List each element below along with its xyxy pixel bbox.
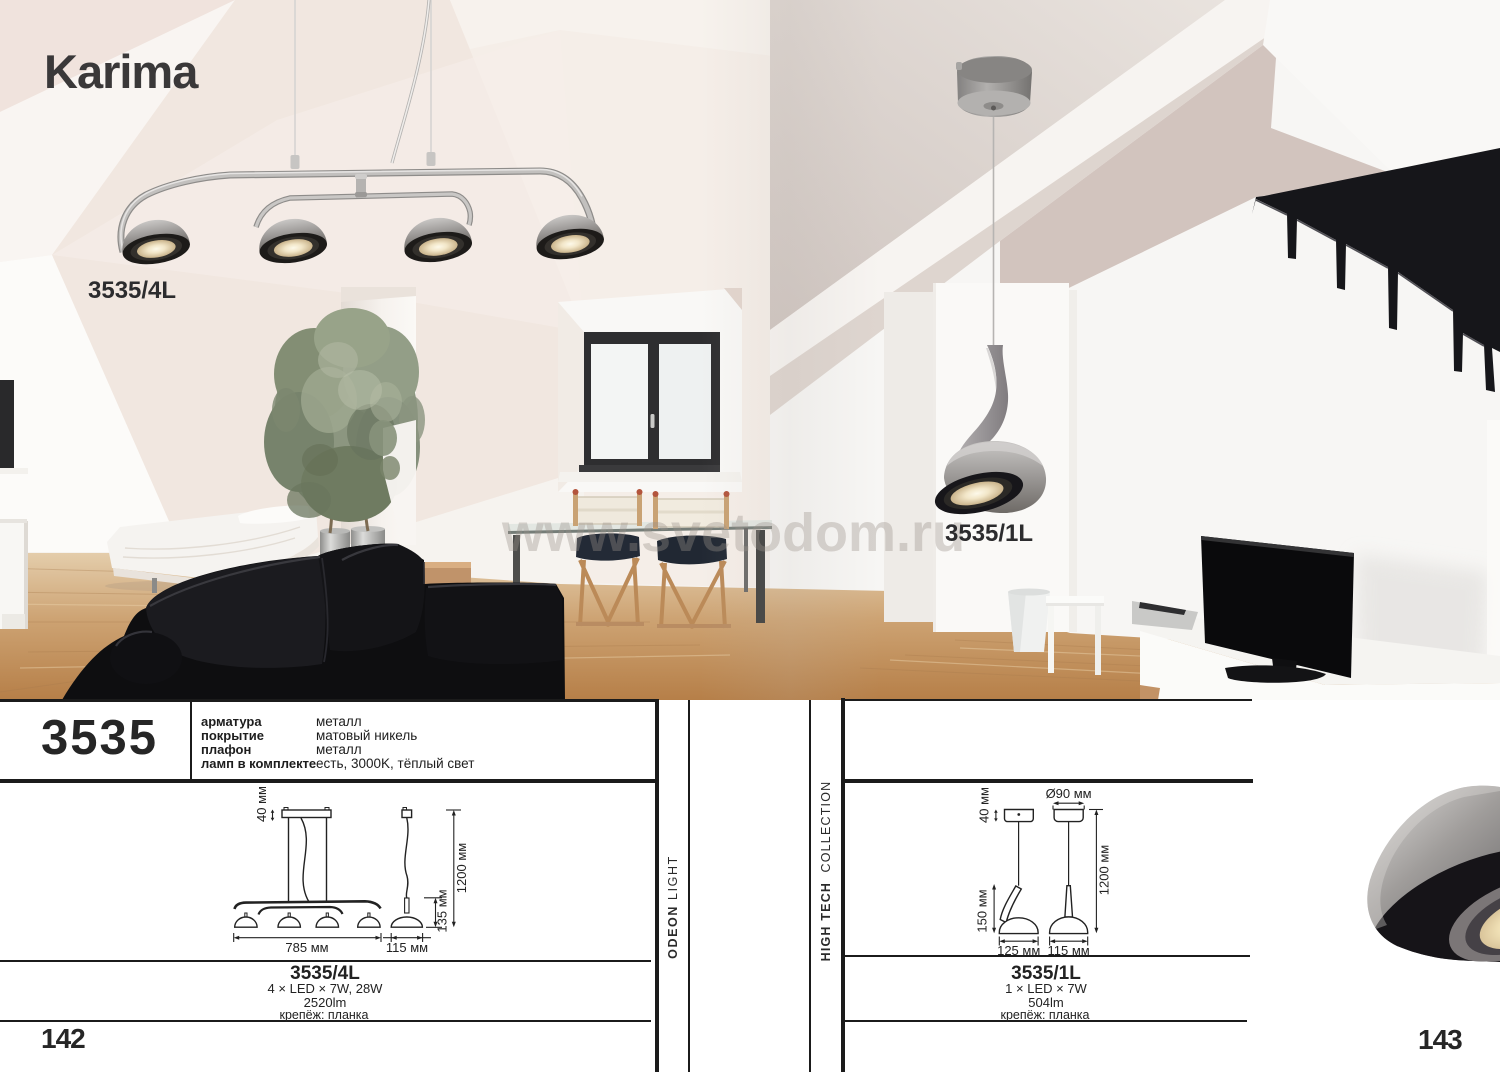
svg-text:115 мм: 115 мм: [386, 940, 428, 955]
svg-text:150 мм: 150 мм: [975, 889, 990, 932]
svg-text:135 мм: 135 мм: [435, 889, 450, 932]
svg-text:Ø90 мм: Ø90 мм: [1046, 786, 1092, 801]
svg-text:Karima: Karima: [44, 45, 199, 98]
svg-text:125 мм: 125 мм: [997, 943, 1040, 958]
svg-text:785 мм: 785 мм: [285, 940, 328, 955]
svg-text:1200 мм: 1200 мм: [454, 843, 469, 893]
svg-text:3535/4L: 3535/4L: [88, 277, 176, 304]
svg-text:1200 мм: 1200 мм: [1097, 845, 1112, 895]
svg-text:115 мм: 115 мм: [1047, 943, 1089, 958]
svg-text:40 мм: 40 мм: [254, 786, 269, 822]
svg-text:3535/1L: 3535/1L: [945, 520, 1033, 547]
svg-text:40 мм: 40 мм: [977, 787, 992, 823]
